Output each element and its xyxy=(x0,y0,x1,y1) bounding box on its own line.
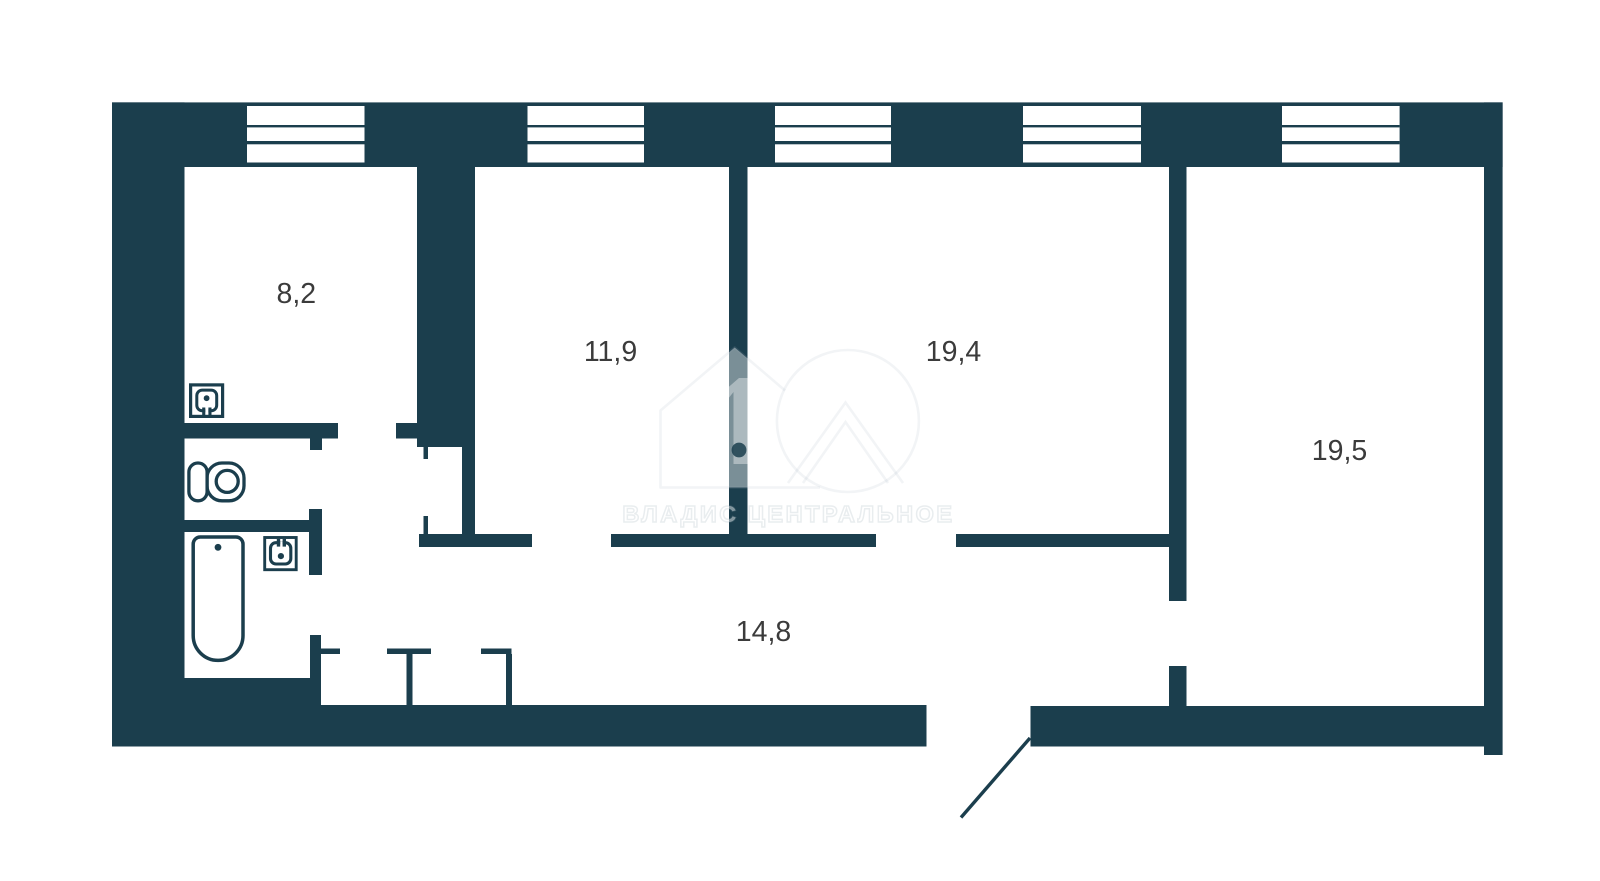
svg-text:11,9: 11,9 xyxy=(584,336,637,368)
svg-text:19,5: 19,5 xyxy=(1312,435,1367,467)
svg-text:14,8: 14,8 xyxy=(736,616,791,648)
svg-text:8,2: 8,2 xyxy=(276,278,316,310)
svg-text:19,4: 19,4 xyxy=(926,336,982,368)
svg-text:ВЛАДИС ЦЕНТРАЛЬНОЕ: ВЛАДИС ЦЕНТРАЛЬНОЕ xyxy=(622,501,954,527)
